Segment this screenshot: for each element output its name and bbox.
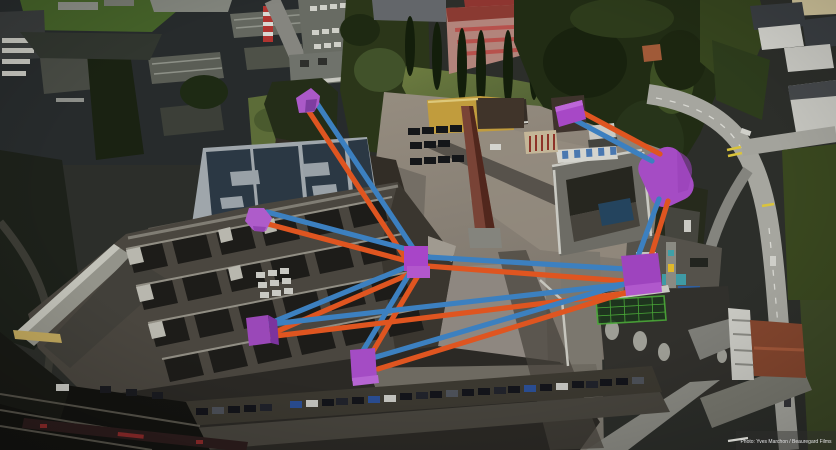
svg-text:Photo: Yves Marchon / Beaurega: Photo: Yves Marchon / Beauregard Films <box>740 439 832 445</box>
